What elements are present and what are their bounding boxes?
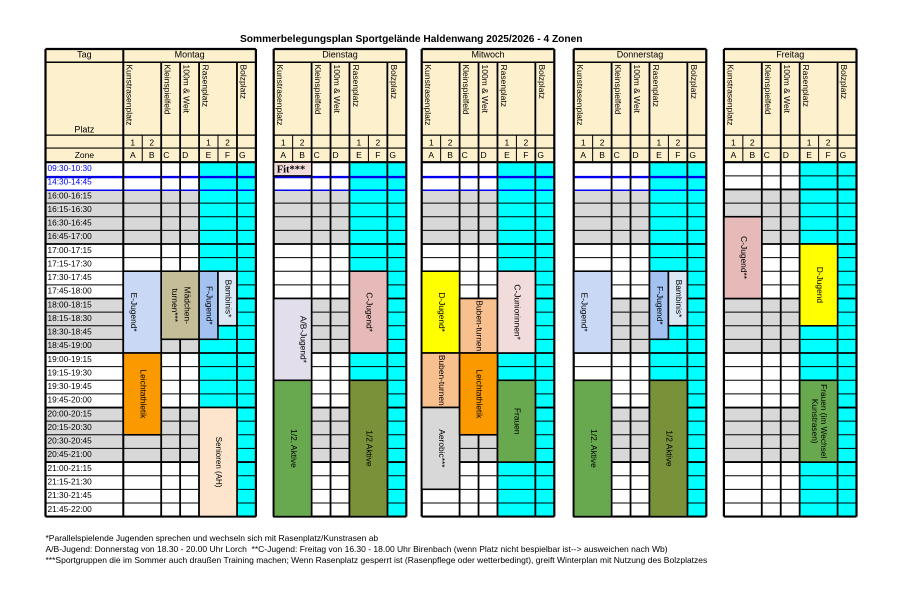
svg-text:G: G: [840, 150, 847, 160]
svg-text:Bolzplatz: Bolzplatz: [389, 65, 399, 100]
svg-text:1: 1: [505, 137, 510, 147]
svg-text:***Sportgruppen die im Sommer: ***Sportgruppen die im Sommer auch drauß…: [46, 555, 708, 565]
svg-text:16:30-16:45: 16:30-16:45: [48, 218, 93, 228]
svg-text:B: B: [299, 150, 305, 160]
svg-text:18:45-19:00: 18:45-19:00: [48, 340, 93, 350]
svg-text:Rasenplatz: Rasenplatz: [651, 65, 661, 108]
svg-text:B: B: [149, 150, 155, 160]
svg-text:C: C: [462, 150, 468, 160]
svg-text:19:00-19:15: 19:00-19:15: [48, 354, 93, 364]
svg-text:D: D: [333, 150, 339, 160]
svg-text:Kleinspielfeld: Kleinspielfeld: [613, 65, 623, 115]
svg-text:D: D: [481, 150, 487, 160]
svg-text:Mitwoch: Mitwoch: [471, 50, 504, 60]
svg-text:G: G: [537, 150, 544, 160]
svg-text:1: 1: [429, 137, 434, 147]
svg-text:D: D: [182, 150, 188, 160]
svg-text:Kleinspielfeld: Kleinspielfeld: [763, 65, 773, 115]
svg-text:16:45-17:00: 16:45-17:00: [48, 231, 93, 241]
svg-text:2: 2: [524, 137, 529, 147]
svg-text:16:00-16:15: 16:00-16:15: [48, 190, 93, 200]
svg-text:F: F: [225, 150, 230, 160]
svg-text:17:00-17:15: 17:00-17:15: [48, 245, 93, 255]
svg-text:19:30-19:45: 19:30-19:45: [48, 381, 93, 391]
svg-text:18:00-18:15: 18:00-18:15: [48, 299, 93, 309]
svg-text:20:15-20:30: 20:15-20:30: [48, 422, 93, 432]
svg-text:21:15-21:30: 21:15-21:30: [48, 477, 93, 487]
svg-text:G: G: [239, 150, 246, 160]
svg-text:Montag: Montag: [175, 50, 205, 60]
svg-text:18:15-18:30: 18:15-18:30: [48, 313, 93, 323]
svg-text:Freitag: Freitag: [776, 50, 804, 60]
svg-text:Platz: Platz: [74, 124, 95, 134]
svg-text:100m & Weit: 100m & Weit: [632, 65, 642, 114]
svg-text:F-Jugend*: F-Jugend*: [655, 286, 665, 325]
svg-text:Donnerstag: Donnerstag: [617, 50, 664, 60]
svg-text:Bolzplatz: Bolzplatz: [839, 65, 849, 100]
svg-text:turnen***: turnen***: [170, 289, 180, 323]
svg-text:C: C: [764, 150, 770, 160]
svg-text:A: A: [731, 150, 737, 160]
svg-text:Kleinspielfeld: Kleinspielfeld: [461, 65, 471, 115]
svg-text:Rasenplatz: Rasenplatz: [351, 65, 361, 108]
svg-text:2: 2: [376, 137, 381, 147]
svg-text:Buben-turnen: Buben-turnen: [475, 300, 485, 351]
svg-text:100m & Weit: 100m & Weit: [182, 65, 192, 114]
svg-text:Sommerbelegungsplan Sportgelän: Sommerbelegungsplan Sportgelände Haldenw…: [240, 34, 583, 45]
svg-text:C: C: [614, 150, 620, 160]
svg-text:Leichtathletik: Leichtathletik: [475, 369, 485, 419]
svg-text:C-Juniorinnen*: C-Juniorinnen*: [513, 284, 523, 340]
svg-text:E: E: [206, 150, 212, 160]
svg-text:E: E: [504, 150, 510, 160]
svg-text:E-Jugend*: E-Jugend*: [129, 293, 139, 333]
svg-text:Kunstrasen): Kunstrasen): [810, 399, 820, 444]
svg-text:C: C: [314, 150, 320, 160]
svg-text:Zone: Zone: [75, 150, 95, 160]
svg-text:A/B-Jugend*: A/B-Jugend*: [298, 316, 308, 364]
svg-text:1/2 Aktive: 1/2 Aktive: [665, 430, 675, 467]
svg-text:G: G: [389, 150, 396, 160]
svg-text:Bolzplatz: Bolzplatz: [689, 65, 699, 100]
svg-text:2: 2: [149, 137, 154, 147]
svg-text:F-Jugend*: F-Jugend*: [205, 286, 215, 325]
svg-text:C-Jugend**: C-Jugend**: [739, 236, 749, 280]
svg-text:D-Jugend: D-Jugend: [815, 267, 825, 304]
svg-text:100m & Weit: 100m & Weit: [332, 65, 342, 114]
svg-text:Bambinis*: Bambinis*: [224, 280, 234, 318]
svg-text:2: 2: [448, 137, 453, 147]
svg-text:B: B: [599, 150, 605, 160]
svg-text:Kunstrasenplatz: Kunstrasenplatz: [575, 65, 585, 126]
svg-text:B: B: [749, 150, 755, 160]
svg-text:20:00-20:15: 20:00-20:15: [48, 408, 93, 418]
svg-text:Tag: Tag: [77, 50, 92, 60]
svg-text:2: 2: [826, 137, 831, 147]
svg-text:100m & Weit: 100m & Weit: [480, 65, 490, 114]
svg-text:A: A: [280, 150, 286, 160]
svg-text:E: E: [806, 150, 812, 160]
svg-text:09:30-10:30: 09:30-10:30: [48, 163, 93, 173]
svg-text:Buben-turnen: Buben-turnen: [437, 355, 447, 406]
svg-text:2: 2: [676, 137, 681, 147]
svg-text:1: 1: [731, 137, 736, 147]
svg-text:Rasenplatz: Rasenplatz: [499, 65, 509, 108]
svg-text:2: 2: [225, 137, 230, 147]
svg-text:F: F: [675, 150, 680, 160]
svg-text:A/B-Jugend: Donnerstag von 18.: A/B-Jugend: Donnerstag von 18.30 - 20.00…: [46, 544, 668, 554]
svg-text:14:30-14:45: 14:30-14:45: [48, 177, 93, 187]
svg-text:Fit***: Fit***: [277, 165, 306, 176]
svg-text:19:15-19:30: 19:15-19:30: [48, 367, 93, 377]
svg-text:Kunstrasenplatz: Kunstrasenplatz: [423, 65, 433, 126]
svg-text:D: D: [633, 150, 639, 160]
svg-text:F: F: [825, 150, 830, 160]
svg-text:1/2 Aktive: 1/2 Aktive: [365, 430, 375, 467]
svg-text:A: A: [580, 150, 586, 160]
svg-text:Bolzplatz: Bolzplatz: [537, 65, 547, 100]
svg-text:1: 1: [657, 137, 662, 147]
svg-text:Aerobic***: Aerobic***: [437, 429, 447, 468]
svg-text:F: F: [523, 150, 528, 160]
svg-text:1/2. Aktive: 1/2. Aktive: [289, 429, 299, 468]
svg-text:16:15-16:30: 16:15-16:30: [48, 204, 93, 214]
svg-text:Dienstag: Dienstag: [322, 50, 358, 60]
svg-text:G: G: [689, 150, 696, 160]
svg-text:1: 1: [281, 137, 286, 147]
svg-text:19:45-20:00: 19:45-20:00: [48, 395, 93, 405]
svg-text:18:30-18:45: 18:30-18:45: [48, 327, 93, 337]
svg-text:F: F: [375, 150, 380, 160]
svg-text:*Parallelspielende Jugenden sp: *Parallelspielende Jugenden sprechen und…: [46, 533, 379, 543]
svg-text:Senioren (AH): Senioren (AH): [214, 437, 223, 488]
svg-text:2: 2: [750, 137, 755, 147]
svg-text:1: 1: [206, 137, 211, 147]
svg-text:21:30-21:45: 21:30-21:45: [48, 490, 93, 500]
svg-text:Kleinspielfeld: Kleinspielfeld: [313, 65, 323, 115]
svg-text:1: 1: [581, 137, 586, 147]
svg-text:Kunstrasenplatz: Kunstrasenplatz: [725, 65, 735, 126]
svg-text:100m & Weit: 100m & Weit: [782, 65, 792, 114]
svg-text:1: 1: [807, 137, 812, 147]
svg-text:Kleinspielfeld: Kleinspielfeld: [163, 65, 173, 115]
svg-text:1/2. Aktive: 1/2. Aktive: [589, 429, 599, 468]
svg-text:2: 2: [600, 137, 605, 147]
svg-text:17:45-18:00: 17:45-18:00: [48, 286, 93, 296]
svg-text:C: C: [163, 150, 169, 160]
svg-text:C-Jugend*: C-Jugend*: [365, 292, 375, 332]
svg-text:A: A: [130, 150, 136, 160]
svg-text:Leichtathletik: Leichtathletik: [138, 369, 148, 419]
svg-text:E-Jugend*: E-Jugend*: [579, 293, 589, 333]
svg-text:E: E: [356, 150, 362, 160]
svg-text:B: B: [447, 150, 453, 160]
svg-text:D-Jugend*: D-Jugend*: [437, 292, 447, 332]
svg-text:20:30-20:45: 20:30-20:45: [48, 436, 93, 446]
svg-text:2: 2: [300, 137, 305, 147]
svg-text:Bambinis*: Bambinis*: [674, 280, 684, 318]
svg-text:Rasenplatz: Rasenplatz: [201, 65, 211, 108]
svg-text:Kunstrasenplatz: Kunstrasenplatz: [125, 65, 135, 126]
svg-text:Kunstrasenplatz: Kunstrasenplatz: [275, 65, 285, 126]
svg-text:D: D: [783, 150, 789, 160]
svg-text:17:30-17:45: 17:30-17:45: [48, 272, 93, 282]
svg-text:E: E: [656, 150, 662, 160]
svg-text:17:15-17:30: 17:15-17:30: [48, 258, 93, 268]
svg-text:1: 1: [130, 137, 135, 147]
svg-text:Frauen: Frauen: [513, 408, 523, 435]
svg-text:A: A: [428, 150, 434, 160]
svg-text:1: 1: [357, 137, 362, 147]
svg-text:Bolzplatz: Bolzplatz: [238, 65, 248, 100]
svg-text:Rasenplatz: Rasenplatz: [801, 65, 811, 108]
svg-text:21:00-21:15: 21:00-21:15: [48, 463, 93, 473]
svg-text:21:45-22:00: 21:45-22:00: [48, 504, 93, 514]
svg-text:Mädchen-: Mädchen-: [183, 287, 193, 324]
svg-text:20:45-21:00: 20:45-21:00: [48, 449, 93, 459]
